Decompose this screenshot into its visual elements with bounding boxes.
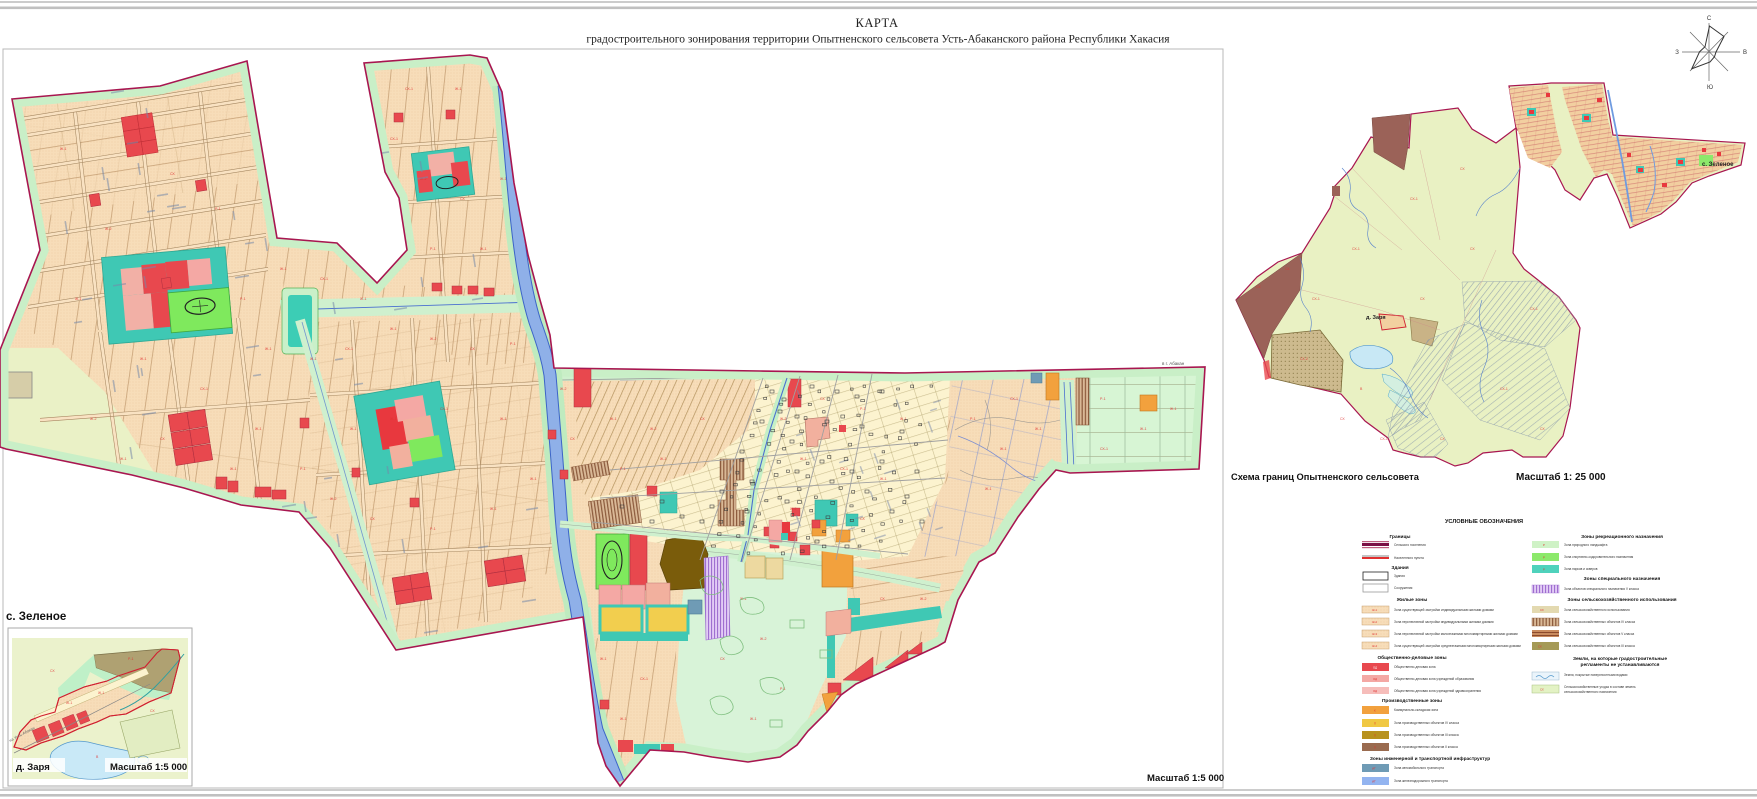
svg-text:СХ: СХ — [1460, 167, 1465, 171]
svg-text:Ж-2: Ж-2 — [430, 337, 437, 341]
svg-text:Ж-2: Ж-2 — [760, 637, 767, 641]
svg-text:Р-1: Р-1 — [970, 417, 976, 421]
svg-text:Ж-1: Ж-1 — [1140, 427, 1147, 431]
svg-text:СХ: СХ — [170, 172, 175, 176]
svg-text:Ж-1: Ж-1 — [1372, 608, 1378, 612]
svg-text:СХ: СХ — [720, 657, 725, 661]
svg-text:П: П — [1374, 722, 1376, 726]
svg-text:Зона существующей застройки ин: Зона существующей застройки индивидуальн… — [1394, 608, 1494, 612]
svg-text:СХ: СХ — [700, 417, 705, 421]
svg-text:Зоны рекреационного назначения: Зоны рекреационного назначения — [1581, 534, 1663, 540]
svg-text:СХ-1: СХ-1 — [1380, 437, 1388, 441]
svg-text:Ж-2: Ж-2 — [650, 427, 657, 431]
svg-text:Масштаб 1:5 000: Масштаб 1:5 000 — [110, 762, 187, 773]
svg-text:СХ-1: СХ-1 — [345, 347, 353, 351]
svg-text:Ж-1: Ж-1 — [985, 487, 992, 491]
svg-text:СХ-1: СХ-1 — [640, 677, 648, 681]
svg-text:СХ-1: СХ-1 — [1100, 447, 1108, 451]
svg-text:Ж-1: Ж-1 — [600, 657, 607, 661]
svg-text:Ж-1: Ж-1 — [610, 417, 617, 421]
svg-text:Ж-1: Ж-1 — [255, 427, 262, 431]
svg-text:СХ-1: СХ-1 — [1352, 247, 1360, 251]
svg-text:СХ-1: СХ-1 — [390, 137, 398, 141]
svg-text:СХ: СХ — [160, 437, 165, 441]
svg-text:СХ-1: СХ-1 — [1312, 297, 1320, 301]
svg-text:Ж-1: Ж-1 — [120, 457, 127, 461]
svg-text:Ж-3: Ж-3 — [1372, 632, 1378, 636]
svg-text:Р-1: Р-1 — [128, 657, 134, 661]
svg-text:Ж-1: Ж-1 — [75, 297, 82, 301]
svg-text:СХ: СХ — [50, 669, 55, 673]
svg-text:Ж-1: Ж-1 — [140, 357, 147, 361]
svg-text:с. Зеленое: с. Зеленое — [6, 611, 66, 623]
svg-text:СХ-1: СХ-1 — [200, 387, 208, 391]
svg-text:Зона перспективной застройки м: Зона перспективной застройки малоэтажным… — [1394, 632, 1518, 636]
svg-text:Ю: Ю — [1707, 85, 1713, 91]
svg-text:Ж-1: Ж-1 — [1000, 447, 1007, 451]
svg-text:Ж-1: Ж-1 — [750, 717, 757, 721]
svg-text:Ж-1: Ж-1 — [350, 427, 357, 431]
svg-text:Зона природного ландшафта: Зона природного ландшафта — [1564, 543, 1608, 547]
svg-text:СХ-1: СХ-1 — [405, 87, 413, 91]
svg-text:Р-1: Р-1 — [620, 467, 626, 471]
svg-text:Р: Р — [1543, 556, 1545, 560]
svg-text:СХ-1: СХ-1 — [840, 467, 848, 471]
svg-text:Ж-1: Ж-1 — [360, 297, 367, 301]
svg-text:СХ-1: СХ-1 — [1010, 397, 1018, 401]
svg-text:В: В — [1743, 50, 1747, 56]
svg-text:Р-1: Р-1 — [215, 207, 221, 211]
svg-text:Ж-1: Ж-1 — [800, 457, 807, 461]
svg-text:Зона сельскохозяйственных объе: Зона сельскохозяйственных объектов V кла… — [1564, 632, 1634, 636]
svg-text:Ж-1: Ж-1 — [480, 247, 487, 251]
svg-text:в г. Абакан: в г. Абакан — [1162, 361, 1185, 366]
svg-text:Зона объектов специального наз: Зона объектов специального назначения V … — [1564, 587, 1639, 591]
svg-text:Ж-2: Ж-2 — [105, 227, 112, 231]
svg-text:ИТ: ИТ — [1372, 780, 1376, 784]
svg-text:ИТ: ИТ — [1372, 767, 1376, 771]
svg-text:Ж-1: Ж-1 — [1035, 427, 1042, 431]
svg-text:Зона сельскохозяйственного исп: Зона сельскохозяйственного использования — [1564, 608, 1630, 612]
svg-text:СХ: СХ — [370, 517, 375, 521]
svg-text:Ж-1: Ж-1 — [230, 467, 237, 471]
svg-text:Границы: Границы — [1389, 534, 1410, 540]
svg-text:Р-1: Р-1 — [860, 407, 866, 411]
svg-text:Ж-1: Ж-1 — [660, 457, 667, 461]
svg-text:Р-1: Р-1 — [430, 527, 436, 531]
svg-text:Общественно-деловая зона учреж: Общественно-деловая зона учреждений обра… — [1394, 677, 1474, 681]
svg-text:Зона сельскохозяйственных объе: Зона сельскохозяйственных объектов IV кл… — [1564, 620, 1635, 624]
svg-text:СХ: СХ — [1540, 427, 1545, 431]
svg-text:Масштаб 1: 25 000: Масштаб 1: 25 000 — [1516, 471, 1606, 483]
svg-text:СХ: СХ — [1340, 417, 1345, 421]
svg-text:Зона производственных объектов: Зона производственных объектов II класса — [1394, 745, 1458, 749]
svg-text:Ж-1: Ж-1 — [98, 691, 104, 695]
svg-text:Зона железнодорожного транспор: Зона железнодорожного транспорта — [1394, 779, 1448, 783]
svg-text:Здания: Здания — [1391, 565, 1409, 571]
svg-text:Р: Р — [1543, 543, 1545, 547]
svg-text:Ж-1: Ж-1 — [60, 147, 67, 151]
svg-text:Зона сельскохозяйственных объе: Зона сельскохозяйственных объектов III к… — [1564, 644, 1635, 648]
svg-text:Ж-2: Ж-2 — [330, 497, 337, 501]
svg-text:П: П — [1374, 734, 1376, 738]
svg-text:Сельского поселения: Сельского поселения — [1394, 543, 1426, 547]
svg-text:Коммунально-складская зона: Коммунально-складская зона — [1394, 708, 1438, 712]
svg-text:Ж-2: Ж-2 — [560, 387, 567, 391]
svg-text:Ж-2: Ж-2 — [790, 507, 797, 511]
svg-text:Ж-1: Ж-1 — [1170, 407, 1177, 411]
svg-text:Зоны сельскохозяйственного исп: Зоны сельскохозяйственного использования — [1567, 596, 1676, 603]
svg-text:СХ: СХ — [1538, 645, 1542, 649]
svg-text:СХ-1: СХ-1 — [1410, 197, 1418, 201]
svg-text:СХ-2: СХ-2 — [1300, 357, 1308, 361]
svg-text:П: П — [1374, 746, 1376, 750]
svg-text:ОД: ОД — [1373, 689, 1377, 693]
svg-text:Зона производственных объектов: Зона производственных объектов III класс… — [1394, 733, 1459, 737]
svg-text:Ж-1: Ж-1 — [490, 507, 497, 511]
svg-text:Производственные зоны: Производственные зоны — [1382, 698, 1442, 704]
svg-text:Зоны инженерной и транспортной: Зоны инженерной и транспортной инфрастру… — [1370, 755, 1490, 762]
svg-text:Масштаб 1:5 000: Масштаб 1:5 000 — [1147, 773, 1224, 784]
svg-text:Ж-1: Ж-1 — [455, 87, 462, 91]
svg-text:Сельскохозяйственные угодья в: Сельскохозяйственные угодья в составе зе… — [1564, 685, 1636, 689]
svg-text:СХ-1: СХ-1 — [1530, 307, 1538, 311]
svg-text:Ж-2: Ж-2 — [780, 417, 787, 421]
svg-text:СХ: СХ — [1420, 297, 1425, 301]
svg-text:Здания: Здания — [1394, 574, 1405, 578]
svg-text:КАРТА: КАРТА — [855, 16, 898, 30]
svg-text:З: З — [1675, 50, 1679, 56]
svg-text:Р-1: Р-1 — [300, 467, 306, 471]
svg-text:ОД: ОД — [1373, 666, 1377, 670]
svg-text:СХ: СХ — [1256, 285, 1261, 289]
svg-text:СХ: СХ — [880, 597, 885, 601]
svg-text:С: С — [1707, 16, 1712, 22]
svg-text:Р: Р — [1543, 568, 1545, 572]
svg-text:Ж-2: Ж-2 — [920, 597, 927, 601]
svg-text:Р-1: Р-1 — [240, 297, 246, 301]
svg-text:СХ: СХ — [820, 397, 825, 401]
svg-text:Ж-1: Ж-1 — [500, 177, 507, 181]
svg-text:Ж-2: Ж-2 — [90, 417, 97, 421]
svg-text:Общественно-деловая зона учреж: Общественно-деловая зона учреждений здра… — [1394, 689, 1481, 693]
svg-text:СХ-1: СХ-1 — [320, 277, 328, 281]
svg-text:Р-1: Р-1 — [430, 247, 436, 251]
svg-text:Зона автомобильного транспорта: Зона автомобильного транспорта — [1394, 766, 1444, 770]
svg-text:Ж-1: Ж-1 — [66, 701, 72, 705]
svg-text:Схема границ Опытненского сель: Схема границ Опытненского сельсовета — [1231, 472, 1420, 482]
svg-text:Ж-1: Ж-1 — [280, 267, 287, 271]
svg-text:Зона существующей застройки ср: Зона существующей застройки среднеэтажны… — [1394, 644, 1521, 648]
svg-text:СХ: СХ — [1540, 608, 1544, 612]
svg-text:д. Заря: д. Заря — [16, 762, 50, 773]
svg-text:Ж-1: Ж-1 — [530, 477, 537, 481]
svg-text:регламенты не устанавливаются: регламенты не устанавливаются — [1581, 663, 1660, 668]
svg-text:с. Зеленое: с. Зеленое — [1702, 162, 1734, 168]
svg-text:Зона парков и скверов: Зона парков и скверов — [1564, 567, 1598, 571]
svg-text:СХ: СХ — [1440, 437, 1445, 441]
svg-text:Зона производственных объектов: Зона производственных объектов IV класса — [1394, 721, 1459, 725]
svg-text:Ж-1: Ж-1 — [390, 417, 397, 421]
svg-text:СХ: СХ — [470, 347, 475, 351]
svg-text:сельскохозяйственного назначен: сельскохозяйственного назначения — [1564, 690, 1617, 694]
svg-text:Р-1: Р-1 — [1100, 397, 1106, 401]
svg-text:Ж-1: Ж-1 — [900, 417, 907, 421]
svg-text:Ж-1: Ж-1 — [500, 417, 507, 421]
svg-text:Зоны специального назначения: Зоны специального назначения — [1584, 576, 1661, 582]
svg-text:Ж-4: Ж-4 — [1372, 644, 1378, 648]
svg-text:Зона перспективной застройки и: Зона перспективной застройки индивидуаль… — [1394, 620, 1494, 624]
svg-text:Населенного пункта: Населенного пункта — [1394, 556, 1424, 560]
svg-text:СХ: СХ — [1285, 267, 1290, 271]
svg-text:СХ-1: СХ-1 — [1500, 387, 1508, 391]
svg-text:Сооружения: Сооружения — [1394, 586, 1413, 590]
svg-text:Зона спортивно-оздоровительног: Зона спортивно-оздоровительного назначен… — [1564, 555, 1634, 559]
svg-text:Общественно-деловые зоны: Общественно-деловые зоны — [1377, 654, 1446, 661]
svg-text:Земли, на которые градостроите: Земли, на которые градостроительные — [1573, 656, 1667, 662]
svg-text:СХ: СХ — [150, 709, 155, 713]
svg-text:Земли, покрытые поверхностными: Земли, покрытые поверхностными водами — [1564, 673, 1628, 677]
svg-text:Жилые зоны: Жилые зоны — [1396, 597, 1428, 603]
svg-text:Ж-2: Ж-2 — [1372, 620, 1378, 624]
svg-text:ОД: ОД — [1373, 677, 1377, 681]
svg-text:Ж-1: Ж-1 — [390, 327, 397, 331]
svg-text:СХ: СХ — [460, 197, 465, 201]
svg-text:Общественно-деловая зона: Общественно-деловая зона — [1394, 665, 1436, 669]
svg-text:градостроительного зонирования: градостроительного зонирования территори… — [586, 34, 1170, 46]
svg-text:д. Заря: д. Заря — [1366, 315, 1386, 321]
svg-text:Ж-1: Ж-1 — [620, 717, 627, 721]
svg-text:СХ-1: СХ-1 — [440, 407, 448, 411]
svg-text:Ж-1: Ж-1 — [880, 477, 887, 481]
svg-text:СХ: СХ — [1540, 688, 1544, 692]
svg-text:Р-1: Р-1 — [510, 342, 516, 346]
svg-text:Ж-1: Ж-1 — [265, 347, 272, 351]
svg-text:СХ: СХ — [570, 437, 575, 441]
svg-text:Ж-1: Ж-1 — [310, 357, 317, 361]
svg-text:УСЛОВНЫЕ ОБОЗНАЧЕНИЯ: УСЛОВНЫЕ ОБОЗНАЧЕНИЯ — [1445, 519, 1523, 525]
svg-text:СХ: СХ — [1470, 247, 1475, 251]
